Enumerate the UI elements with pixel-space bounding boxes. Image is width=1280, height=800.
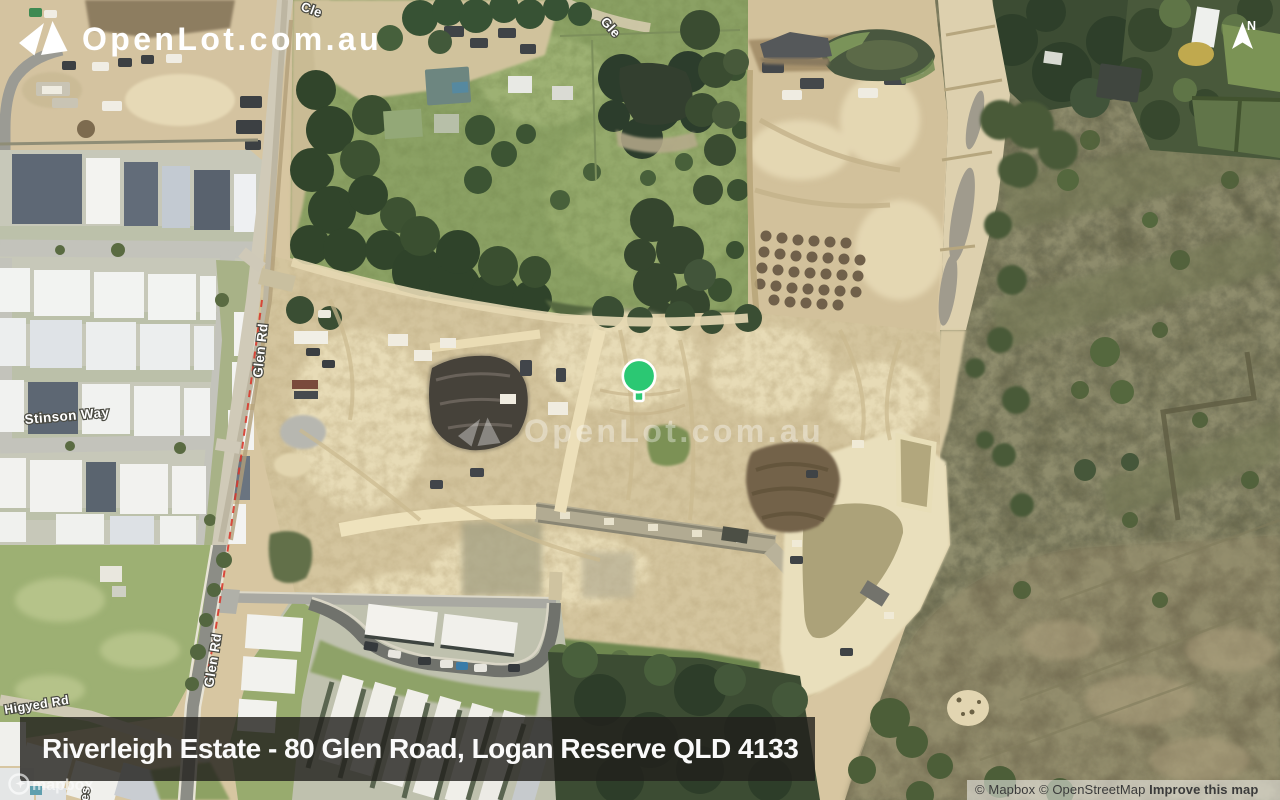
svg-text:N: N [1247, 19, 1256, 33]
svg-text:OpenLot.com.au: OpenLot.com.au [524, 413, 824, 449]
svg-text:mapbox: mapbox [32, 777, 93, 794]
svg-text:OpenLot.com.au: OpenLot.com.au [82, 21, 382, 57]
